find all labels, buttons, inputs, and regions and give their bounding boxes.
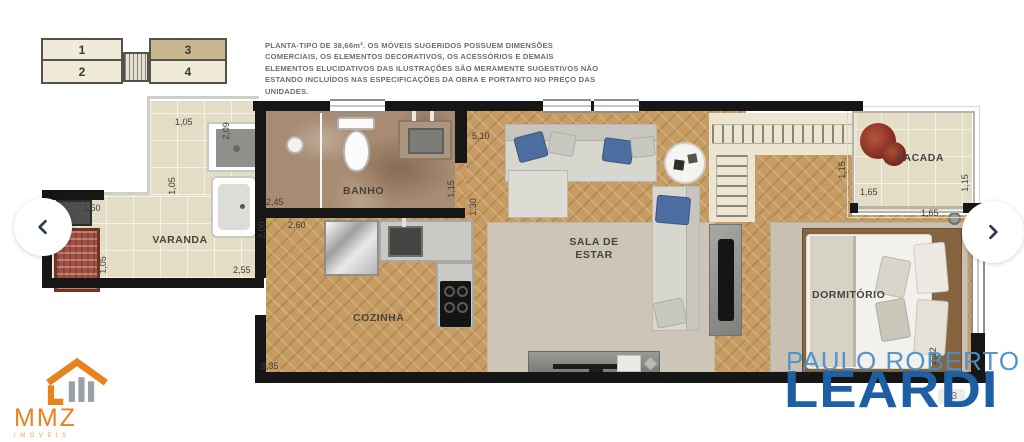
- dimension-label: 1,15: [837, 155, 847, 185]
- unit-number: 1: [79, 43, 86, 57]
- keyplan-right-block: 3 4: [149, 38, 227, 84]
- keyplan-unit-2: 2: [43, 61, 121, 82]
- room-label-dormitorio: DORMITÓRIO: [812, 289, 885, 301]
- disclaimer-text: PLANTA-TIPO DE 38,66m². OS MÓVEIS SUGERI…: [265, 40, 603, 97]
- keyplan-unit-3-highlighted: 3: [151, 40, 225, 61]
- dimension-label: 2,55: [233, 265, 251, 275]
- burner: [457, 302, 468, 313]
- room-label-sacada: SACADA: [896, 152, 944, 164]
- closet-rack-top: [712, 124, 854, 144]
- toilet-tank: [337, 117, 375, 130]
- bathroom-vanity: [398, 120, 452, 160]
- side-table: [664, 142, 706, 184]
- table-item: [673, 159, 684, 170]
- wall-segment: [262, 208, 465, 218]
- dimension-label: 1,05: [167, 171, 177, 201]
- burner: [444, 286, 455, 297]
- window: [330, 99, 385, 113]
- dimension-label: 2,45: [266, 197, 284, 207]
- dimension-label: 2,60: [288, 220, 306, 230]
- keyplan-left-block: 1 2: [41, 38, 123, 84]
- dimension-label: 1,15: [446, 174, 456, 204]
- burner: [444, 302, 455, 313]
- varanda-railing: [147, 96, 150, 195]
- sink-basin: [218, 184, 250, 230]
- bed-pillow: [913, 242, 949, 295]
- faucet: [412, 111, 416, 121]
- pillow-gray: [630, 136, 656, 158]
- laundry-sink: [211, 176, 257, 238]
- unit-number: 4: [185, 65, 192, 79]
- sofa-chaise: [508, 170, 568, 218]
- next-photo-button[interactable]: [962, 201, 1024, 263]
- kitchen-faucet: [402, 218, 406, 227]
- wall-segment: [42, 278, 264, 288]
- dimension-label: 9,35: [261, 361, 279, 371]
- chevron-right-icon: [983, 222, 1003, 242]
- tv-divider-panel: [709, 224, 742, 336]
- agency-logo: MMZ IMÓVEIS: [14, 358, 134, 439]
- sink-drain: [240, 204, 245, 209]
- vanity-basin: [408, 128, 444, 154]
- tank-drain: [233, 145, 240, 152]
- closet-rack-side: [716, 155, 748, 217]
- keyplan-stair-core: [123, 52, 149, 82]
- keyplan-unit-4: 4: [151, 61, 225, 82]
- kitchen-cabinet-steel: [324, 220, 379, 276]
- window: [594, 99, 639, 113]
- faucet: [430, 111, 434, 121]
- agency-name: MMZ: [14, 406, 134, 431]
- wall-segment: [455, 101, 467, 163]
- prev-photo-button[interactable]: [14, 198, 72, 256]
- dimension-label: 2,00: [257, 215, 267, 245]
- pillow-gray: [547, 131, 576, 157]
- shower-screen: [320, 113, 322, 209]
- console-device: [617, 355, 641, 372]
- room-label-varanda: VARANDA: [150, 234, 210, 246]
- dimension-label: 5,10: [472, 131, 490, 141]
- shower-drain: [286, 136, 304, 154]
- bedroom-tv: [718, 239, 734, 321]
- pillow-blue: [655, 195, 691, 226]
- table-item: [687, 153, 697, 163]
- house-icon: [42, 358, 112, 406]
- room-label-banho: BANHO: [343, 185, 384, 197]
- burner: [457, 286, 468, 297]
- watermark-brand-logo: LEARDI: [784, 364, 998, 416]
- dimension-label: 1,05: [175, 117, 193, 127]
- dimension-label: 1,30: [468, 192, 478, 222]
- sacada-sliding-door: [856, 206, 968, 209]
- dimension-label: 1,15: [960, 168, 970, 198]
- wall-segment: [255, 101, 266, 218]
- floorplan-photo: 1 2 3 4 PLANTA-TIPO DE 38,66m². OS MÓVEI…: [0, 0, 1024, 442]
- decor-diamond: [643, 356, 659, 372]
- dimension-label: 1,65: [921, 208, 939, 218]
- chevron-left-icon: [33, 217, 53, 237]
- keyplan-unit-1: 1: [43, 40, 121, 61]
- room-label-sala: SALA DE ESTAR: [558, 236, 630, 261]
- toilet-bowl: [343, 130, 370, 172]
- dimension-label: 1,05: [98, 250, 108, 280]
- building-keyplan: 1 2 3 4: [33, 28, 233, 92]
- cooktop: [440, 281, 471, 327]
- room-label-cozinha: COZINHA: [353, 312, 404, 324]
- wall-segment: [850, 203, 858, 213]
- agency-subtitle: IMÓVEIS: [14, 433, 134, 439]
- unit-number: 3: [185, 43, 192, 57]
- kitchen-sink: [388, 226, 423, 257]
- window: [543, 99, 591, 113]
- wall-segment: [473, 101, 863, 111]
- dimension-label: 1,50: [83, 203, 101, 213]
- unit-number: 2: [79, 65, 86, 79]
- dimension-label: 1,65: [860, 187, 878, 197]
- varanda-railing: [104, 192, 150, 195]
- dimension-label: 2,09: [221, 116, 231, 146]
- varanda-railing: [147, 96, 259, 99]
